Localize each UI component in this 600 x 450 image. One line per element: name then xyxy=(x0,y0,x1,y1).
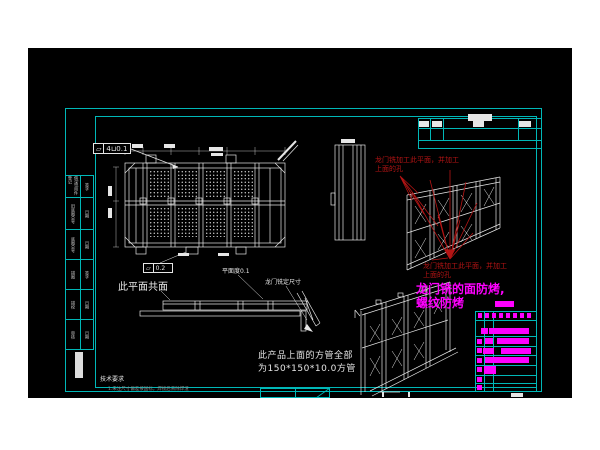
rev-entry xyxy=(419,121,429,127)
dim-text xyxy=(164,144,175,148)
bom-header-glyph xyxy=(499,313,503,318)
bom-bar xyxy=(497,338,529,344)
magenta-note-line2: 螺纹防烤 xyxy=(416,297,464,311)
iso-view-upper xyxy=(407,177,500,270)
magenta-block xyxy=(495,301,514,307)
plan-view xyxy=(113,141,298,254)
gdt-symbol: ▱ xyxy=(144,264,154,272)
bom-bar xyxy=(477,367,482,372)
rev-entry xyxy=(468,114,492,121)
section-view xyxy=(331,145,365,240)
red-note-lower-line2: 上面的孔 xyxy=(423,271,451,279)
red-leader-lines xyxy=(400,170,477,260)
dim-text xyxy=(211,153,223,156)
gdt-value: 0.2 xyxy=(154,264,168,272)
square-tube-note-line1: 此产品上面的方管全部 xyxy=(258,351,353,361)
dim-text xyxy=(218,253,229,256)
bom-bar xyxy=(477,348,482,353)
dim-text xyxy=(209,147,223,151)
bom-header-glyph xyxy=(478,313,482,318)
dim-text xyxy=(108,208,112,218)
bom-bar xyxy=(481,328,488,334)
bom-bar xyxy=(484,366,496,374)
sheet-note xyxy=(511,393,523,397)
red-note-upper-line2: 上面的孔 xyxy=(375,165,403,173)
fold-diagonal xyxy=(316,388,330,398)
tech-req-note: 1.未注尺寸偏差按国标，焊接后去除焊渣 xyxy=(108,387,189,392)
bom-header-glyph xyxy=(492,313,496,318)
tech-req-title: 技术要求 xyxy=(100,377,124,384)
gantry-dim-label: 龙门铣定尺寸 xyxy=(265,280,301,287)
gdt-value: 4⊔0.1 xyxy=(104,144,129,153)
gdt-symbol: ▱ xyxy=(94,144,104,153)
dim-text xyxy=(108,186,112,196)
bom-bar xyxy=(477,385,482,390)
bom-bar xyxy=(485,357,529,363)
fold-mark xyxy=(408,392,410,397)
bom-bar xyxy=(485,338,493,344)
flatness-label: 平面度0.1 xyxy=(222,269,250,276)
strip-box xyxy=(75,352,83,378)
rev-entry xyxy=(432,121,442,127)
square-tube-note-line2: 为150*150*10.0方管 xyxy=(258,364,356,374)
bom-header-glyph xyxy=(513,313,517,318)
bom-bar xyxy=(477,377,482,382)
red-note-lower-line1: 龙门铣加工此平面，并加工 xyxy=(423,262,507,270)
bom-bar xyxy=(501,348,531,354)
drawing-linework xyxy=(28,48,572,398)
fold-mark xyxy=(382,392,384,397)
dim-text xyxy=(178,253,189,256)
rev-entry xyxy=(519,121,531,127)
bom-header-glyph xyxy=(527,313,531,318)
gdt-frame-flatness: ▱ 4⊔0.1 xyxy=(93,143,131,154)
coplanar-label: 此平面共面 xyxy=(118,282,168,294)
dim-text xyxy=(132,144,143,148)
red-note-upper-line1: 龙门铣加工此平面，并加工 xyxy=(375,156,459,164)
cad-screenshot: 借(通)用件登记 签字 旧底图总号 日期 底图总号 日期 描图 签字 描校 日期… xyxy=(0,0,600,450)
bom-bar xyxy=(483,348,494,354)
bom-header-glyph xyxy=(520,313,524,318)
bom-bar xyxy=(477,339,482,344)
magenta-note-line1: 龙门铣的面防烤, xyxy=(416,283,505,297)
rev-entry xyxy=(473,121,484,127)
drawing-canvas[interactable]: 借(通)用件登记 签字 旧底图总号 日期 底图总号 日期 描图 签字 描校 日期… xyxy=(28,48,572,398)
dim-text xyxy=(341,139,355,143)
bom-bar xyxy=(489,328,529,334)
gdt-frame-coplanarity: ▱ 0.2 xyxy=(143,263,173,273)
bom-header-glyph xyxy=(506,313,510,318)
bom-header-glyph xyxy=(485,313,489,318)
bom-bar xyxy=(477,358,482,363)
